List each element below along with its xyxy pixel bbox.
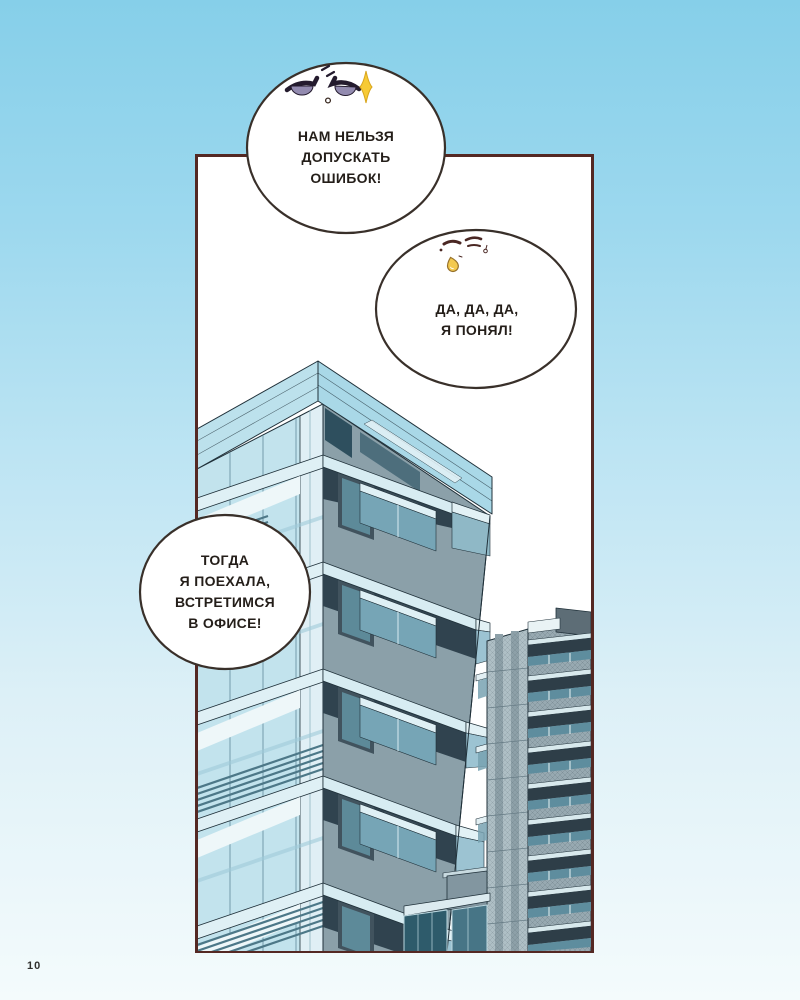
bubble-3-line: ВСТРЕТИМСЯ [125,592,325,613]
bubble-3-text: ТОГДА Я ПОЕХАЛА, ВСТРЕТИМСЯ В ОФИСЕ! [125,550,325,634]
bubble-1-line: НАМ НЕЛЬЗЯ [246,126,446,147]
bubble-2-line: ДА, ДА, ДА, [377,299,577,320]
bubble-1-line: ОШИБОК! [246,168,446,189]
bubble-1-text: НАМ НЕЛЬЗЯ ДОПУСКАТЬ ОШИБОК! [246,126,446,189]
bubble-3-line: Я ПОЕХАЛА, [125,571,325,592]
bubble-1-line: ДОПУСКАТЬ [246,147,446,168]
bubble-3-line: В ОФИСЕ! [125,613,325,634]
page-number: 10 [27,960,41,972]
bubble-2-text: ДА, ДА, ДА, Я ПОНЯЛ! [377,299,577,341]
right-tower-floors [528,633,591,952]
bubble-2-line: Я ПОНЯЛ! [377,320,577,341]
right-tower [476,608,591,952]
comic-page: НАМ НЕЛЬЗЯ ДОПУСКАТЬ ОШИБОК! ДА, ДА, ДА,… [0,0,800,1000]
bubble-3-line: ТОГДА [125,550,325,571]
